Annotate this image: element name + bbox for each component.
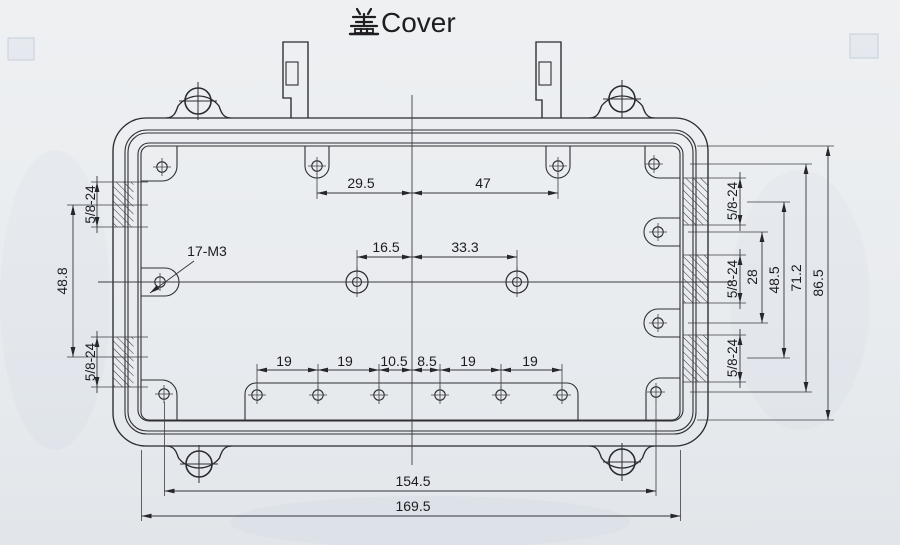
dim-label-thread-right-top: 5/8-24	[725, 181, 740, 220]
hatch-right-bottom	[684, 335, 708, 382]
dim-label-16-5: 16.5	[372, 239, 399, 255]
dim-label-thread-right-bottom: 5/8-24	[725, 338, 740, 377]
dim-label-8-5: 8.5	[417, 353, 437, 369]
dim-label-33-3: 33.3	[451, 239, 478, 255]
dim-label-71-2: 71.2	[788, 264, 804, 291]
hatch-left-bottom	[114, 337, 134, 387]
dim-label-thread-left-top: 5/8-24	[83, 185, 98, 224]
dim-label-48-8: 48.8	[54, 267, 70, 294]
dim-label-19-2: 19	[337, 353, 353, 369]
showthrough-square-left	[8, 38, 34, 60]
dim-label-28: 28	[744, 269, 760, 285]
dim-label-10-5: 10.5	[380, 353, 407, 369]
dim-label-19-4: 19	[522, 353, 538, 369]
dim-label-19-3: 19	[460, 353, 476, 369]
hatch-right-top	[684, 178, 708, 225]
hatch-left-top	[114, 182, 134, 227]
thread-note-label: 17-M3	[187, 243, 227, 259]
dim-label-29-5: 29.5	[347, 175, 374, 191]
dim-label-thread-left-bottom: 5/8-24	[83, 342, 98, 381]
title-text: Cover	[381, 7, 456, 38]
cover-technical-drawing: Cover	[0, 0, 900, 545]
dim-label-48-5: 48.5	[766, 266, 782, 293]
hatch-right-mid	[684, 255, 708, 303]
dim-label-19-1: 19	[276, 353, 292, 369]
dim-label-47: 47	[475, 175, 491, 191]
dim-label-154-5: 154.5	[395, 473, 430, 489]
showthrough-square-right	[850, 34, 878, 58]
dim-label-86-5: 86.5	[810, 269, 826, 296]
dim-label-169-5: 169.5	[395, 498, 430, 514]
dim-label-thread-right-mid: 5/8-24	[725, 259, 740, 298]
scanned-drawing-sheet: Cover	[0, 0, 900, 545]
